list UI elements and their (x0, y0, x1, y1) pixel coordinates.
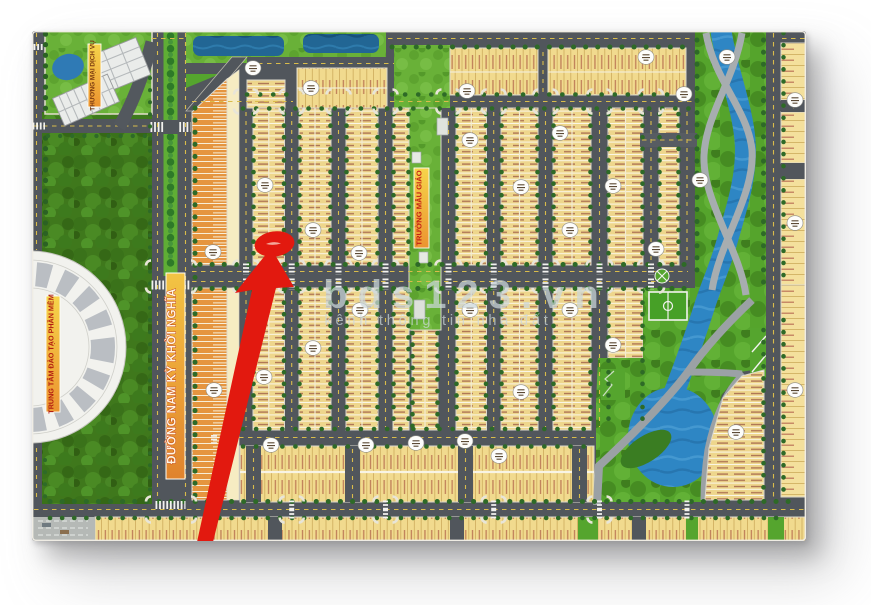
svg-text:TRUNG TÂM ĐÀO TẠO PHẦN MỀM: TRUNG TÂM ĐÀO TẠO PHẦN MỀM (46, 294, 56, 413)
svg-text:TRƯỜNG MẪU GIÁO: TRƯỜNG MẪU GIÁO (415, 170, 424, 245)
svg-text:bds123.vn: bds123.vn (323, 273, 609, 317)
svg-text:ĐƯỜNG NAM KỲ KHỞI NGHĨA: ĐƯỜNG NAM KỲ KHỞI NGHĨA (166, 288, 179, 464)
svg-text:THƯƠNG MẠI DỊCH VỤ: THƯƠNG MẠI DỊCH VỤ (90, 40, 97, 111)
svg-text:kênh thông tin nhà đất: kênh thông tin nhà đất (324, 313, 551, 329)
